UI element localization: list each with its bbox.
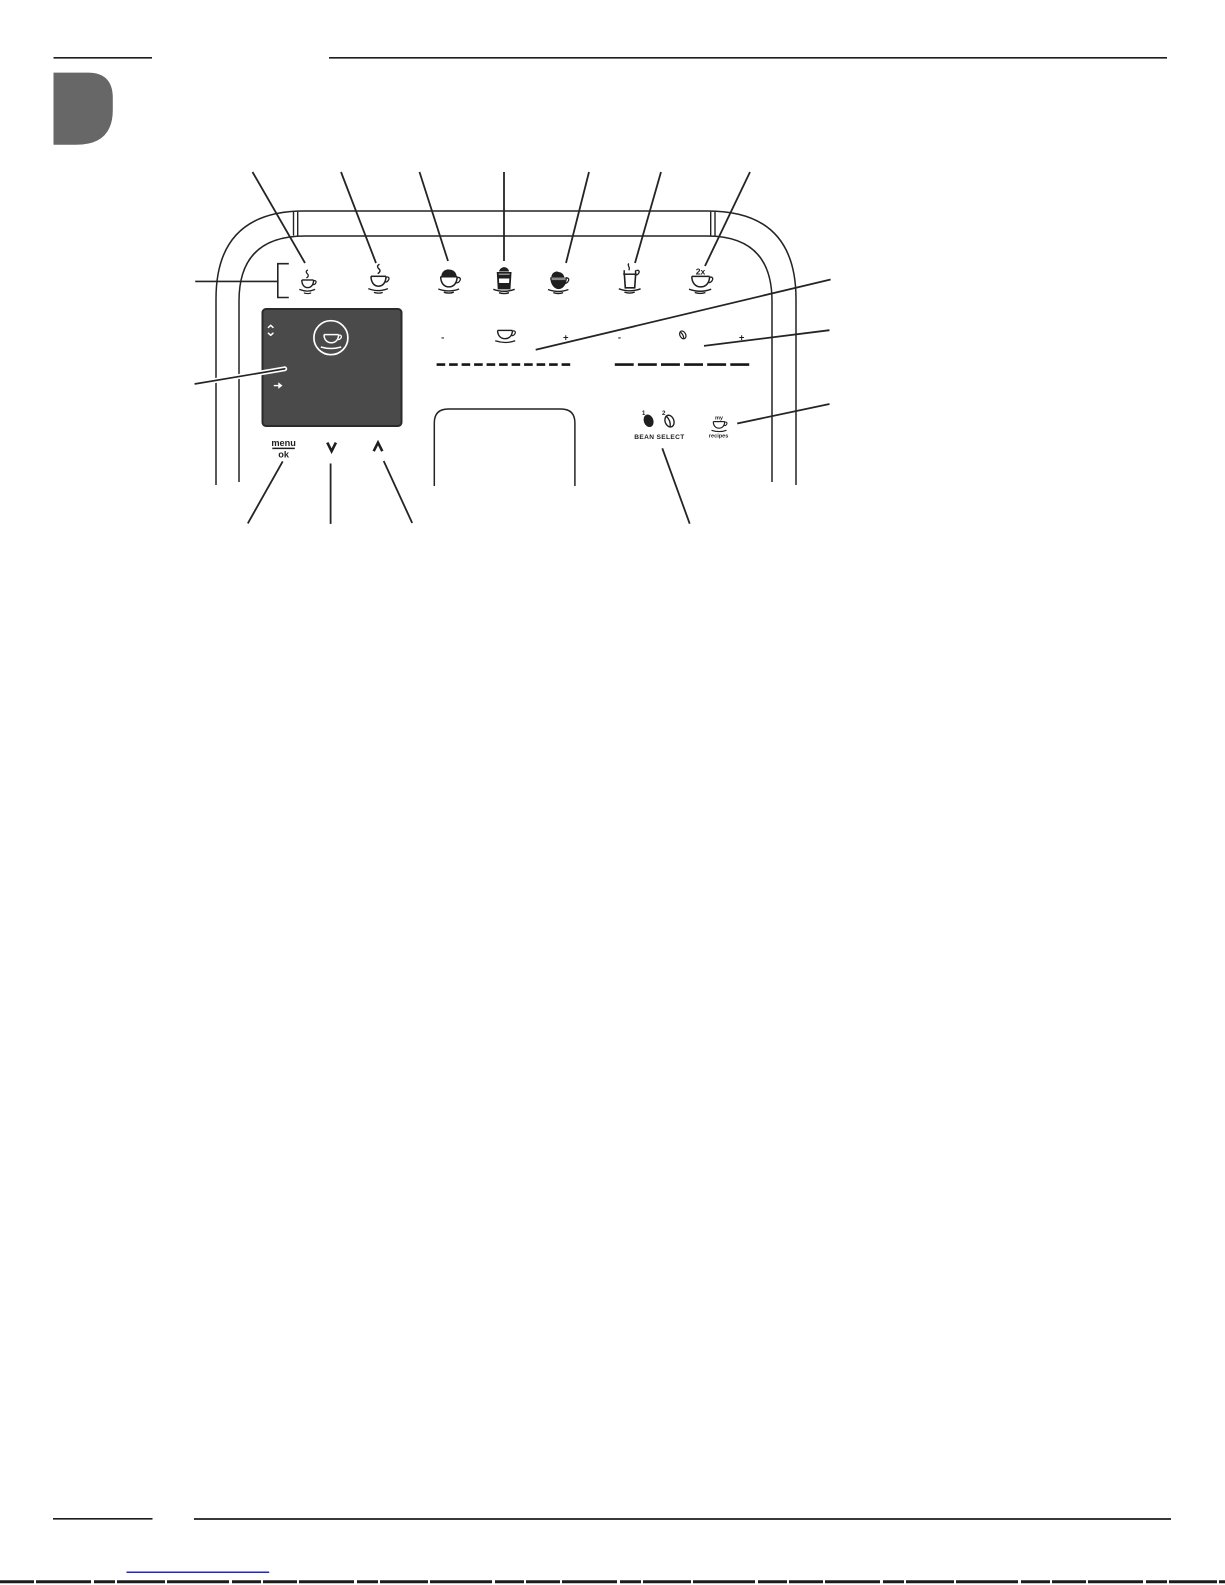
svg-text:2x: 2x <box>696 267 706 277</box>
svg-text:ok: ok <box>278 450 290 460</box>
svg-text:BEAN SELECT: BEAN SELECT <box>634 434 684 441</box>
svg-text:-: - <box>441 332 444 343</box>
svg-text:2: 2 <box>662 410 666 417</box>
svg-text:-: - <box>618 332 621 343</box>
svg-text:menu: menu <box>271 438 296 448</box>
svg-text:my: my <box>715 415 724 421</box>
svg-text:recipes: recipes <box>709 434 729 440</box>
